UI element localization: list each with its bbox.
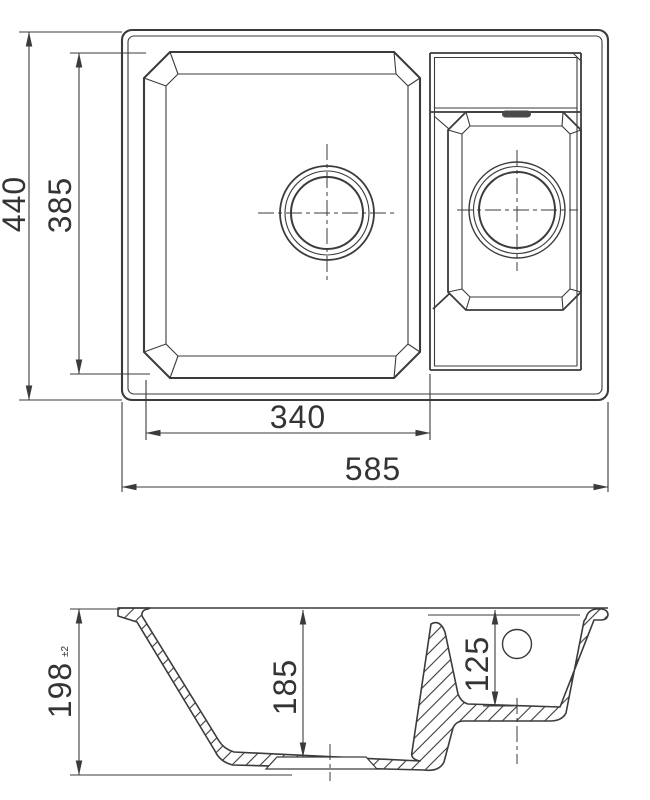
sink-technical-drawing: 440 385 340 585 — [0, 0, 650, 800]
dim-label-125: 125 — [459, 636, 495, 692]
overflow-slot — [502, 111, 531, 118]
dim-label-185: 185 — [267, 659, 303, 715]
dim-main-bowl-width: 340 — [146, 374, 430, 440]
main-bowl-outer-rim — [144, 52, 420, 378]
dim-main-bowl-length: 385 — [42, 53, 150, 374]
sink-outer-edge — [122, 30, 608, 400]
main-bowl-corner-bevels — [144, 52, 420, 378]
main-drain-flat — [266, 757, 377, 769]
section-cut-profile — [118, 608, 608, 770]
dim-overall-height: 198 ±2 — [42, 609, 292, 775]
dim-label-585: 585 — [345, 451, 401, 487]
dim-label-340: 340 — [270, 399, 326, 435]
dim-label-198-tolerance: ±2 — [60, 646, 71, 657]
dim-small-bowl-depth: 125 — [459, 610, 513, 706]
overflow-hole-section — [503, 630, 532, 659]
plan-view: 440 385 340 585 — [0, 30, 608, 492]
dim-label-198: 198 — [42, 662, 78, 718]
dim-label-440: 440 — [0, 176, 32, 232]
drawing-canvas: 440 385 340 585 — [0, 0, 650, 800]
sink-inner-edge — [128, 36, 602, 394]
small-bowl-unit — [430, 53, 581, 370]
main-drain — [258, 144, 396, 282]
main-bowl-inner-rim — [166, 74, 408, 356]
small-bowl-outer-rim — [448, 112, 581, 310]
dim-overall-width: 585 — [122, 402, 608, 492]
dim-label-385: 385 — [42, 177, 78, 233]
small-drain — [457, 150, 578, 271]
small-bowl-corner-bevels — [448, 112, 581, 310]
section-view: 198 ±2 185 125 — [42, 608, 608, 781]
dim-main-bowl-depth: 185 — [267, 610, 303, 757]
